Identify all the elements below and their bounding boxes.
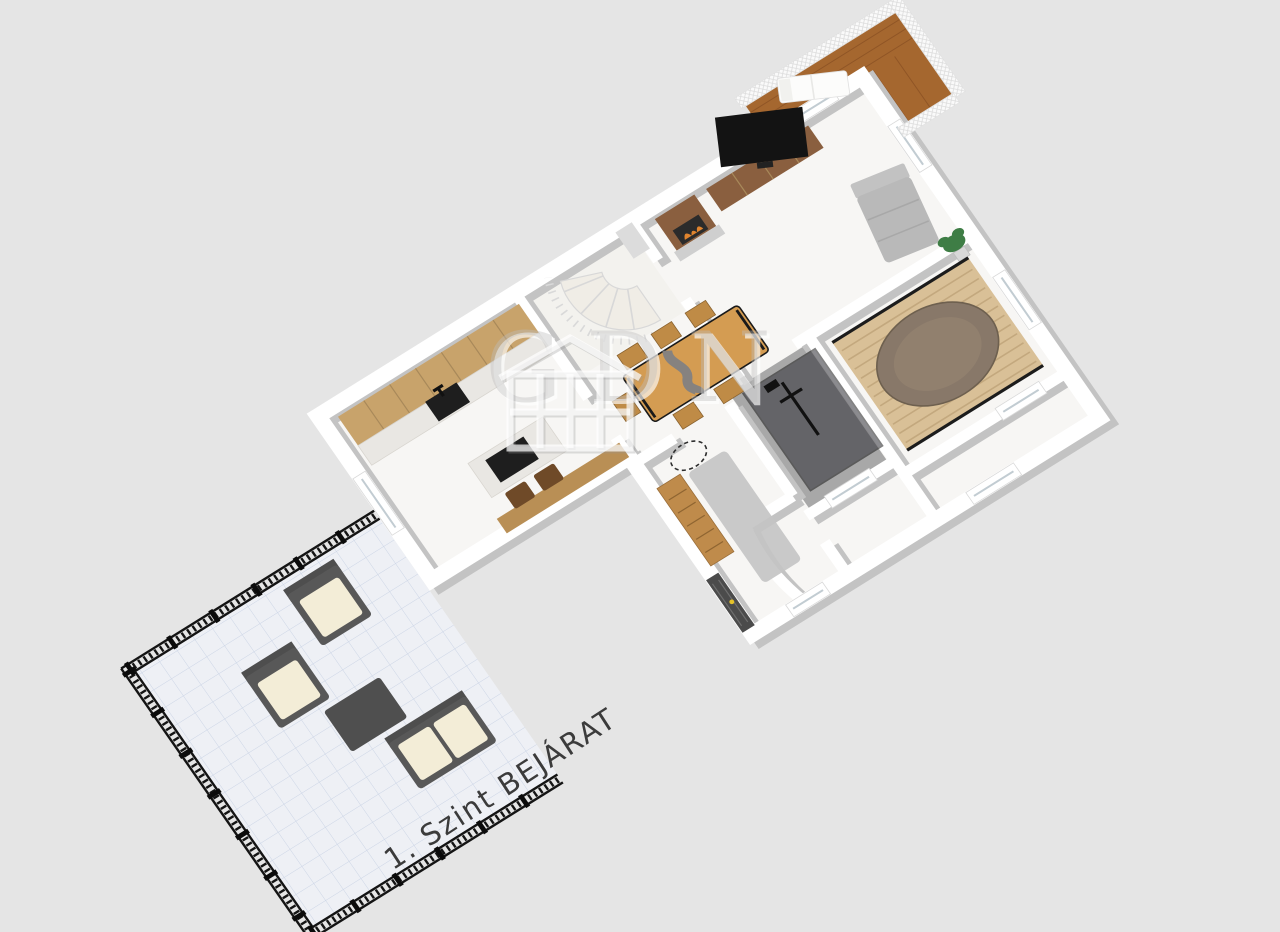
floorplan-render: GDN 1. Szint BEJÁRAT xyxy=(0,0,1280,932)
floorplan-svg xyxy=(0,0,1280,932)
